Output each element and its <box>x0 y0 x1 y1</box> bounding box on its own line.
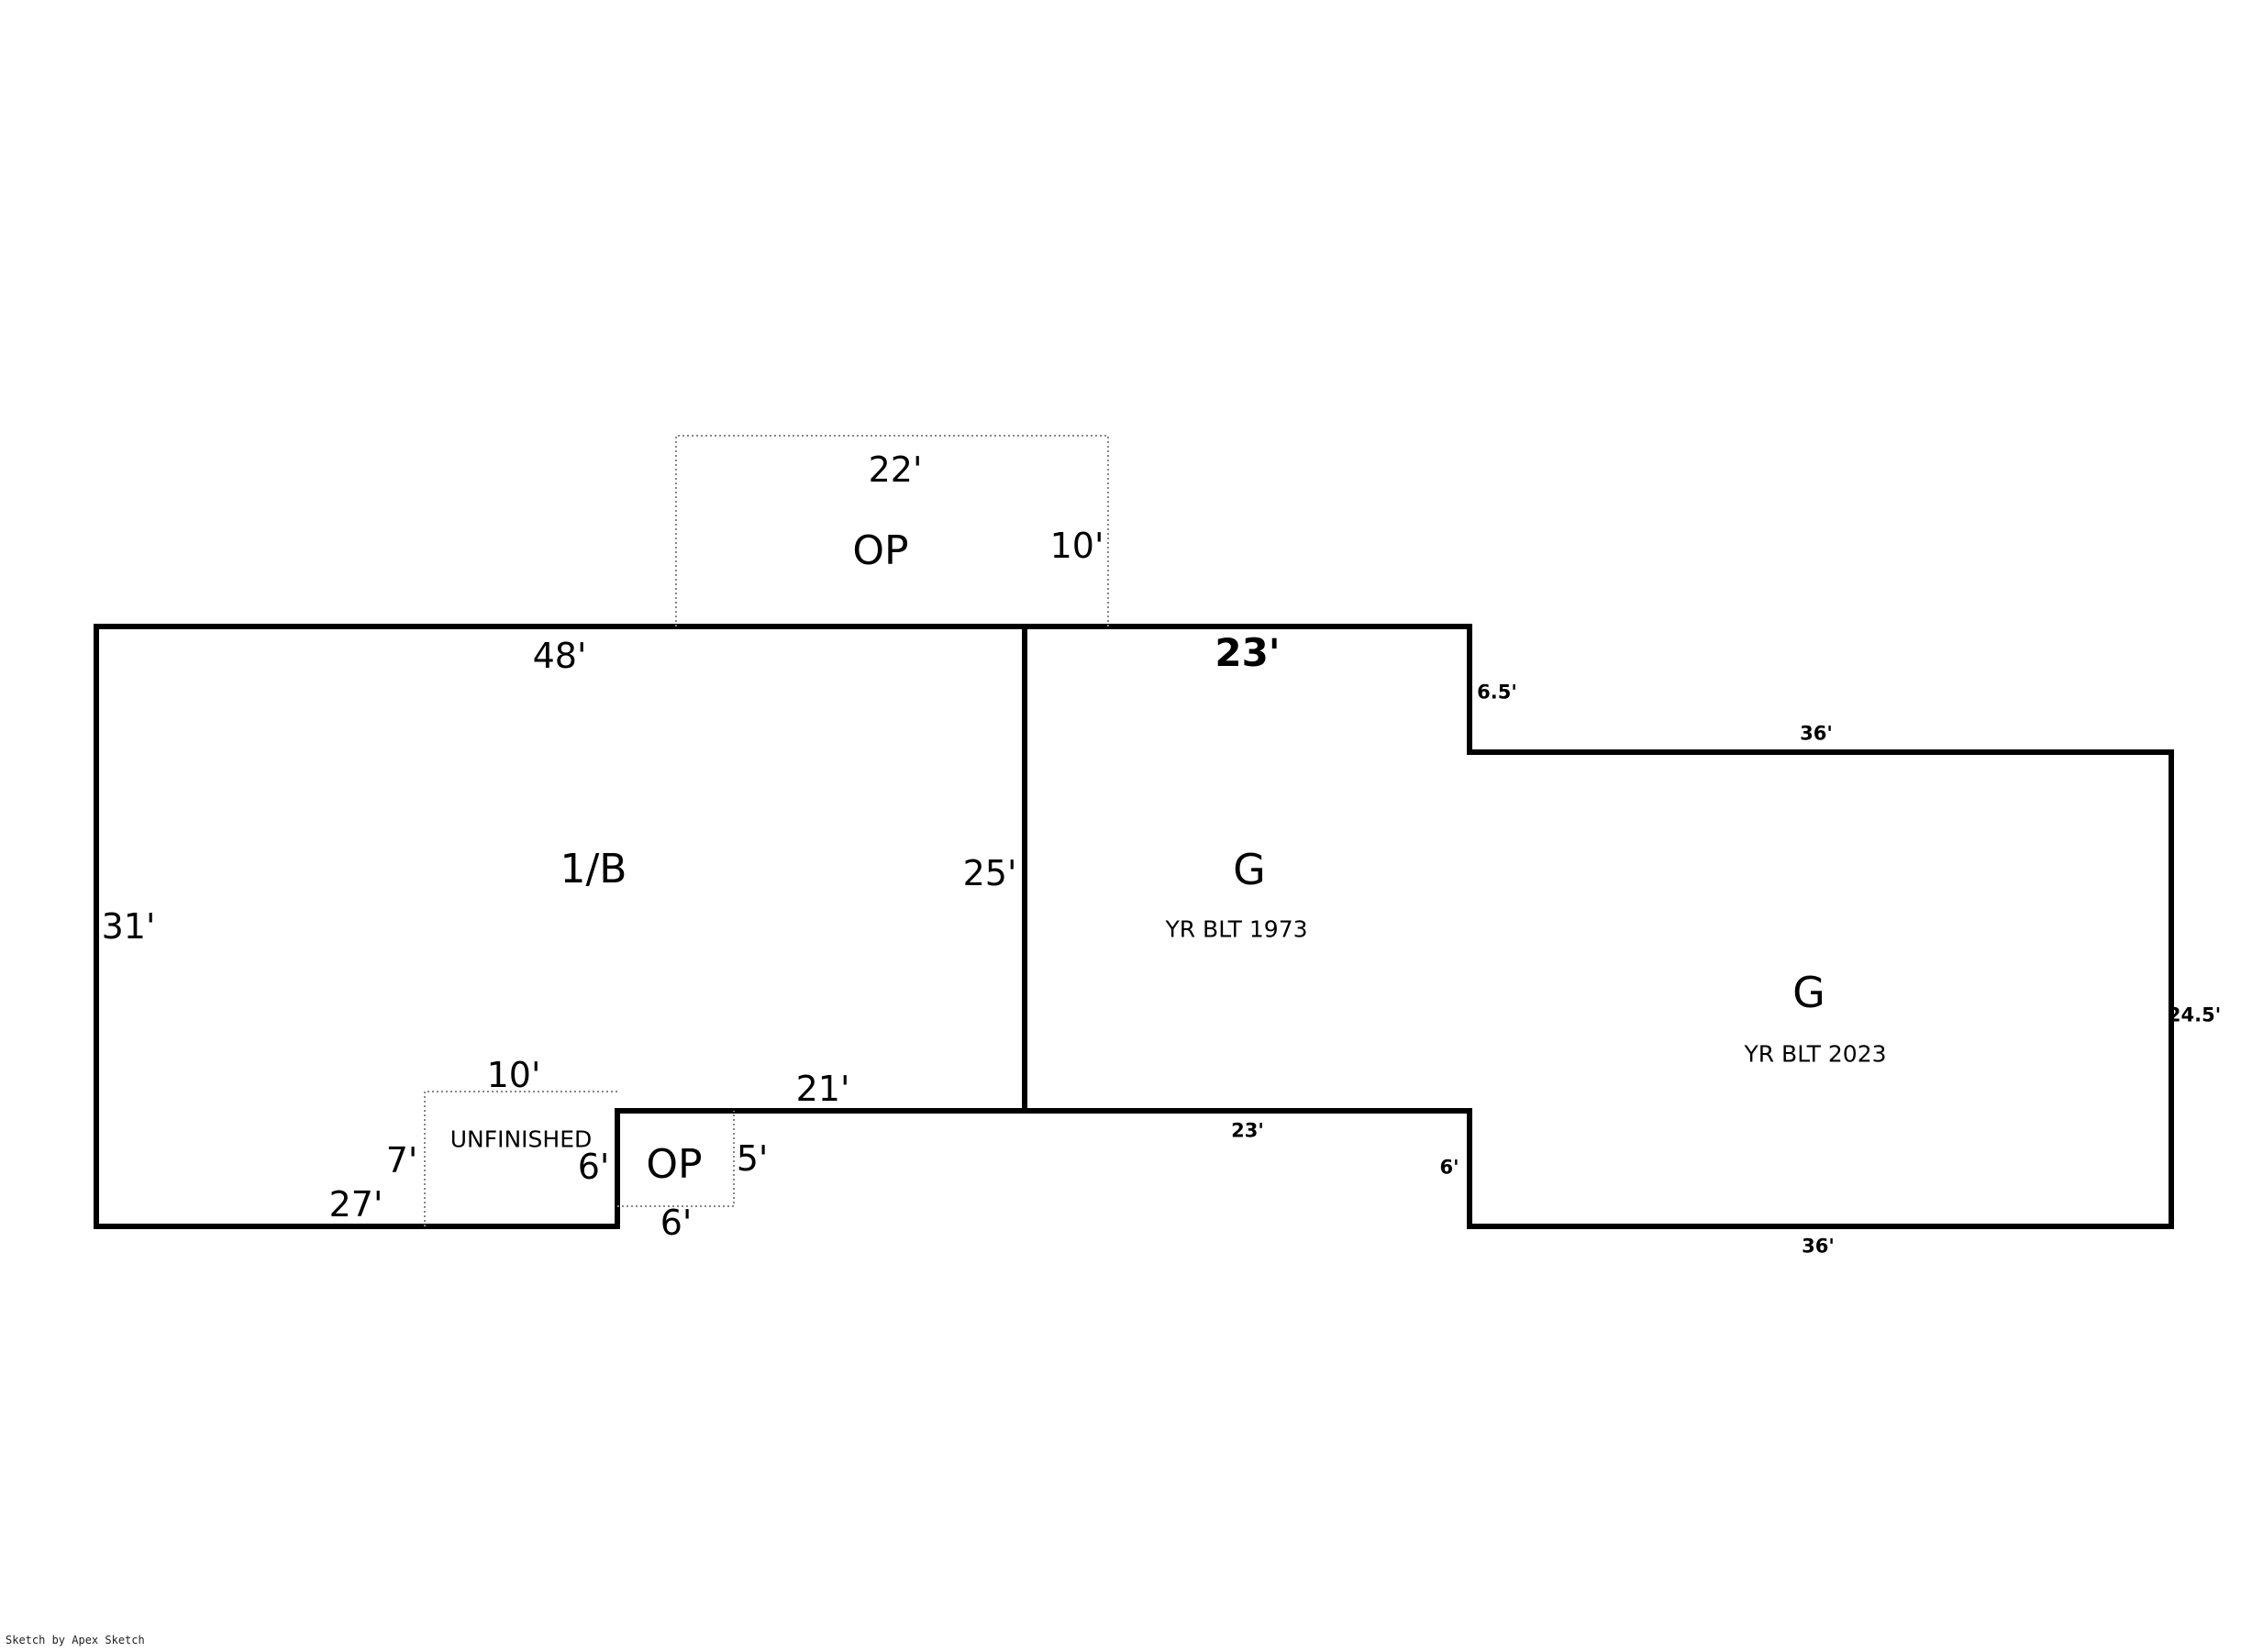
room-label-garage-2023: G <box>1792 971 1825 1014</box>
dim-unfinished-top: 10' <box>487 1058 541 1092</box>
dim-porch-bottom-right: 5' <box>737 1141 769 1176</box>
dim-garage2023-top: 36' <box>1800 725 1833 744</box>
room-label-garage-1973: G <box>1233 848 1266 891</box>
dim-main-left: 31' <box>102 909 156 944</box>
dim-porch-bottom-bottom: 6' <box>660 1205 693 1240</box>
dim-garage2023-right: 24.5' <box>2168 1006 2221 1026</box>
dim-porch-top-depth: 10' <box>1050 528 1104 563</box>
year-built-2023: YR BLT 2023 <box>1744 1043 1886 1066</box>
room-label-unfinished: UNFINISHED <box>450 1128 593 1151</box>
room-label-main-house: 1/B <box>560 849 627 890</box>
dim-garage1973-bottom: 23' <box>1231 1122 1264 1141</box>
dim-unfinished-right: 6' <box>578 1149 610 1184</box>
year-built-1973: YR BLT 1973 <box>1165 918 1307 941</box>
dim-main-right: 25' <box>963 856 1017 891</box>
outline-walls <box>96 626 2171 1226</box>
floor-plan-sketch: 22' OP 10' 48' 31' 1/B 25' 27' 21' 23' 6… <box>0 0 2252 1652</box>
floor-plan-drawing <box>0 0 2252 1652</box>
dim-garage1973-step: 6' <box>1439 1159 1459 1178</box>
dim-main-notch-top: 21' <box>796 1071 850 1106</box>
dim-main-top: 48' <box>533 638 587 673</box>
room-label-porch-top: OP <box>852 531 908 571</box>
sketch-credit: Sketch by Apex Sketch <box>6 1635 145 1646</box>
room-label-porch-bottom: OP <box>646 1145 702 1185</box>
dim-main-bottom: 27' <box>329 1187 383 1222</box>
dim-porch-top-width: 22' <box>869 452 923 487</box>
dim-garage1973-top: 23' <box>1215 634 1280 672</box>
dim-garage1973-right: 6.5' <box>1477 683 1517 703</box>
dim-garage2023-bottom: 36' <box>1802 1237 1835 1257</box>
dim-unfinished-left: 7' <box>386 1143 418 1178</box>
